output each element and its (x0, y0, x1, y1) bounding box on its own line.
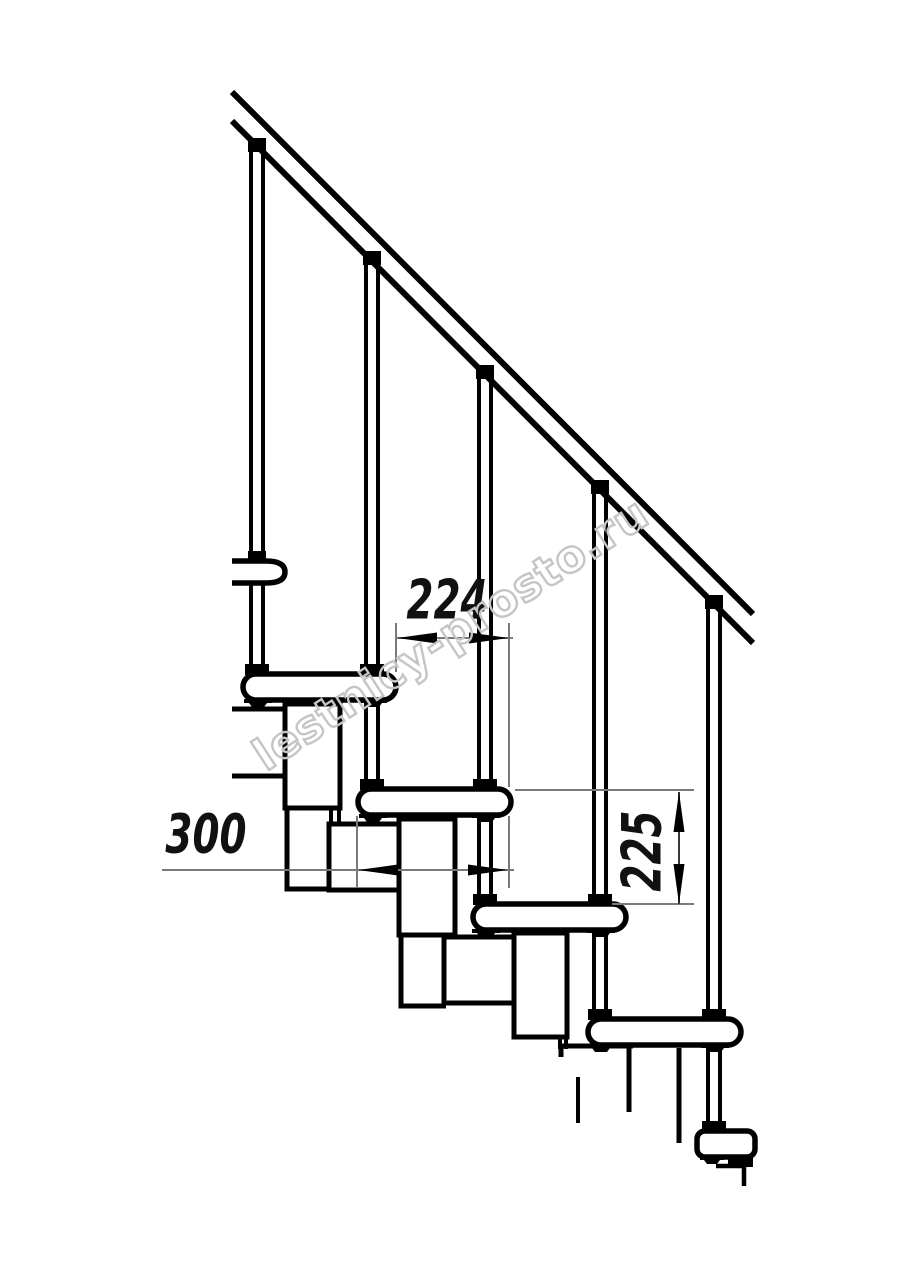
tread-6-fragment (697, 1131, 755, 1157)
foot-b2-tread3 (360, 779, 384, 790)
module-box-b4 (444, 937, 518, 1003)
foot-b3-tread4 (473, 894, 497, 905)
clamp-b5-tread5 (702, 1009, 726, 1020)
dimension-label-225: 225 (611, 810, 674, 891)
module-box-d4 (514, 933, 567, 1037)
clamp-b4-tread4 (588, 894, 612, 905)
tread-1-fragment (232, 561, 285, 583)
clamp-b3-tread3 (473, 779, 497, 790)
dimension-label-300: 300 (165, 803, 246, 866)
tread-4 (473, 904, 626, 930)
staircase-drawing: 224 300 225 lestnicy-prosto.ru (0, 0, 914, 1280)
staircase-drawing-page: 224 300 225 lestnicy-prosto.ru (0, 0, 914, 1280)
module-box-b3 (329, 824, 403, 890)
foot-b5-tread6 (702, 1121, 726, 1132)
tread-3 (358, 789, 511, 815)
module-box-d3 (399, 819, 455, 935)
foot-b1-tread2 (245, 664, 269, 675)
foot-b4-tread5 (588, 1009, 612, 1020)
tread-5 (588, 1019, 741, 1045)
collar-b1-tread1 (248, 551, 266, 562)
